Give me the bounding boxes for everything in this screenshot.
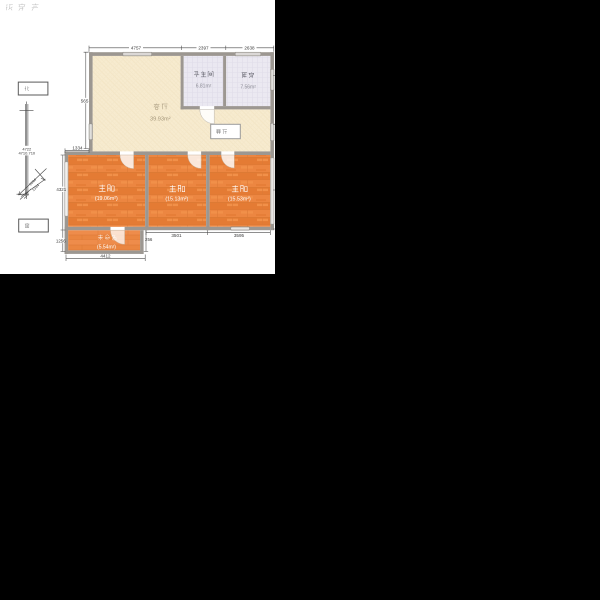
svg-text:2397: 2397 — [198, 46, 209, 51]
svg-text:(15.53m²): (15.53m²) — [228, 197, 251, 203]
svg-text:2638: 2638 — [244, 46, 255, 51]
svg-text:7.56m²: 7.56m² — [240, 84, 256, 90]
svg-text:1334: 1334 — [72, 145, 83, 150]
svg-text:1256: 1256 — [56, 238, 66, 243]
svg-text:4710.710: 4710.710 — [18, 151, 35, 156]
svg-text:4321: 4321 — [56, 187, 66, 192]
svg-text:4412: 4412 — [100, 253, 111, 258]
svg-text:565: 565 — [81, 98, 89, 103]
svg-text:(19.06m²): (19.06m²) — [95, 196, 118, 202]
svg-text:3501: 3501 — [171, 233, 182, 238]
svg-text:6.81m²: 6.81m² — [196, 83, 212, 89]
svg-text:39.93m²: 39.93m² — [150, 116, 171, 122]
svg-text:(15.13m²): (15.13m²) — [165, 197, 188, 203]
svg-text:3595: 3595 — [234, 233, 245, 238]
svg-text:4757: 4757 — [131, 46, 142, 51]
svg-text:(5.54m²): (5.54m²) — [97, 245, 116, 251]
svg-text:256: 256 — [145, 237, 153, 242]
